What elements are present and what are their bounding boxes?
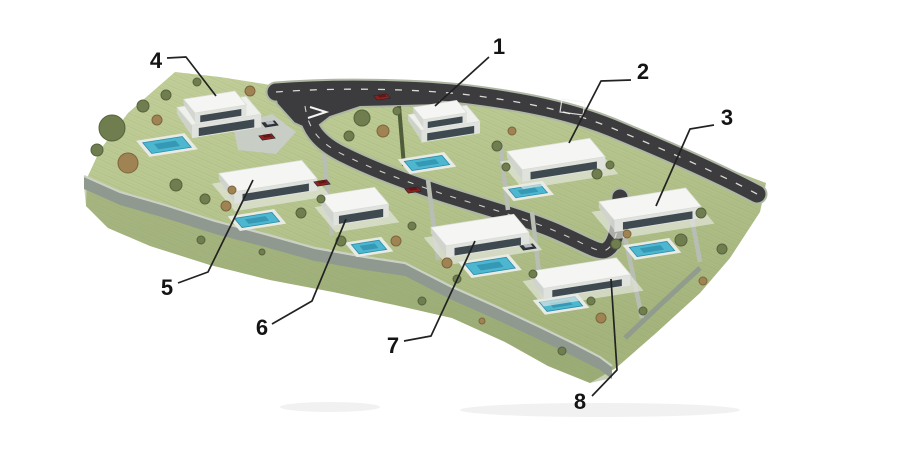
tree bbox=[587, 297, 595, 305]
plot-label-4: 4 bbox=[150, 48, 163, 73]
tree bbox=[508, 127, 516, 135]
tree bbox=[623, 230, 631, 238]
plot-label-2: 2 bbox=[637, 59, 649, 84]
tree bbox=[696, 208, 706, 218]
tree bbox=[675, 234, 687, 246]
tree bbox=[529, 270, 537, 278]
tree bbox=[699, 277, 707, 285]
tree bbox=[377, 125, 389, 137]
tree bbox=[391, 236, 401, 246]
tree bbox=[558, 347, 566, 355]
tree bbox=[118, 153, 138, 173]
tree bbox=[502, 163, 510, 171]
tree bbox=[639, 307, 647, 315]
ground-shadow bbox=[460, 403, 740, 417]
plot-label-7: 7 bbox=[387, 333, 399, 358]
plot-label-3: 3 bbox=[721, 105, 733, 130]
tree bbox=[418, 297, 426, 305]
tree bbox=[479, 318, 485, 324]
plot-label-1: 1 bbox=[493, 34, 505, 59]
tree bbox=[197, 236, 205, 244]
tree bbox=[161, 90, 171, 100]
tree bbox=[408, 222, 416, 230]
tree bbox=[152, 115, 162, 125]
tree bbox=[228, 186, 236, 194]
tree bbox=[193, 78, 201, 86]
site-plan-figure: 12345678 bbox=[0, 0, 900, 455]
tree bbox=[606, 161, 614, 169]
tree bbox=[296, 208, 306, 218]
tree bbox=[393, 107, 401, 115]
tree bbox=[717, 244, 727, 254]
tree bbox=[317, 195, 325, 203]
tree bbox=[344, 131, 354, 141]
tree bbox=[596, 313, 606, 323]
tree bbox=[221, 201, 231, 211]
plot-label-5: 5 bbox=[161, 275, 173, 300]
tree bbox=[137, 100, 149, 112]
tree bbox=[592, 169, 602, 179]
tree bbox=[245, 86, 255, 96]
tree bbox=[611, 239, 621, 249]
tree bbox=[354, 110, 370, 126]
plot-label-8: 8 bbox=[574, 389, 586, 414]
site-plan-render: 12345678 bbox=[0, 0, 900, 455]
tree bbox=[259, 249, 265, 255]
tree bbox=[99, 115, 125, 141]
ground-shadow bbox=[280, 402, 380, 412]
plot-label-6: 6 bbox=[256, 315, 268, 340]
tree bbox=[200, 194, 210, 204]
tree bbox=[91, 144, 103, 156]
tree bbox=[170, 179, 182, 191]
tree bbox=[442, 258, 452, 268]
tree bbox=[492, 141, 502, 151]
